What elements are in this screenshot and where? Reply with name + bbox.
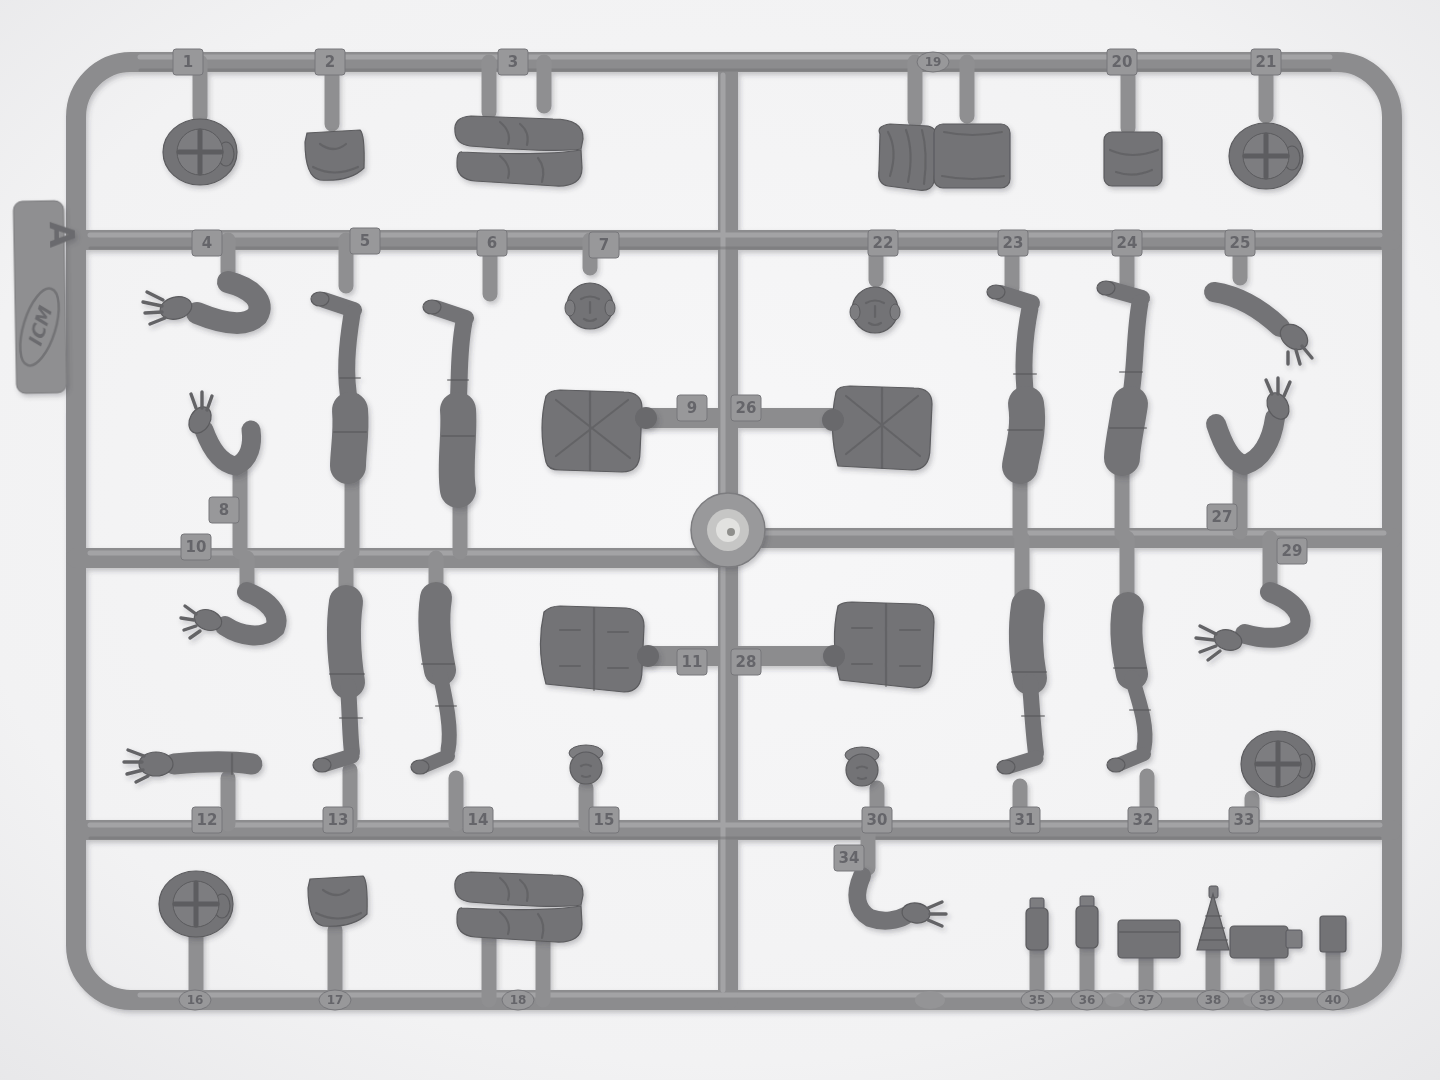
part-number-tag: 12 <box>192 807 222 833</box>
svg-text:12: 12 <box>197 811 218 829</box>
svg-text:15: 15 <box>594 811 615 829</box>
svg-text:25: 25 <box>1230 234 1251 252</box>
svg-text:18: 18 <box>510 993 527 1007</box>
svg-text:21: 21 <box>1256 53 1277 71</box>
part-11-torso <box>540 606 659 692</box>
part-number-tag: 31 <box>1010 807 1040 833</box>
part-number-tag: 38 <box>1197 990 1229 1010</box>
part-19-backpack <box>879 124 1010 190</box>
svg-text:40: 40 <box>1325 993 1342 1007</box>
svg-text:8: 8 <box>219 501 229 519</box>
part-number-tag: 39 <box>1251 990 1283 1010</box>
part-26-torso <box>822 386 932 470</box>
part-number-tag: 22 <box>868 230 898 256</box>
svg-text:24: 24 <box>1117 234 1138 252</box>
blank-gate-tab <box>1105 993 1125 1007</box>
part-33-peaked-cap <box>1241 731 1315 797</box>
svg-text:19: 19 <box>925 55 942 69</box>
part-30-head <box>845 747 879 786</box>
part-number-tag: 2 <box>315 49 345 75</box>
svg-text:14: 14 <box>468 811 489 829</box>
svg-text:28: 28 <box>736 653 757 671</box>
svg-text:1: 1 <box>183 53 193 71</box>
part-number-tag: 10 <box>181 534 211 560</box>
svg-text:5: 5 <box>360 232 370 250</box>
part-2-side-cap <box>305 130 364 180</box>
part-number-tag: 25 <box>1225 230 1255 256</box>
sprue-letter: A <box>42 221 82 249</box>
center-ejector-boss <box>691 493 765 567</box>
part-number-tag: 3 <box>498 49 528 75</box>
svg-text:17: 17 <box>327 993 344 1007</box>
part-number-tag: 35 <box>1021 990 1053 1010</box>
svg-text:39: 39 <box>1259 993 1276 1007</box>
part-number-tag: 34 <box>834 845 864 871</box>
svg-text:20: 20 <box>1112 53 1133 71</box>
sprue-frame-a: A ICM 1231920214567222324258926102711282… <box>0 0 1440 1080</box>
svg-text:34: 34 <box>839 849 860 867</box>
svg-text:26: 26 <box>736 399 757 417</box>
part-number-tag: 33 <box>1229 807 1259 833</box>
sprue-photo: A ICM 1231920214567222324258926102711282… <box>0 0 1440 1080</box>
svg-text:3: 3 <box>508 53 518 71</box>
svg-text:9: 9 <box>687 399 697 417</box>
part-number-tag: 4 <box>192 230 222 256</box>
svg-text:10: 10 <box>186 538 207 556</box>
part-9-torso <box>542 390 657 472</box>
part-number-tag: 1 <box>173 49 203 75</box>
part-number-tag: 21 <box>1251 49 1281 75</box>
part-number-tag: 9 <box>677 395 707 421</box>
part-16-peaked-cap <box>159 871 233 937</box>
svg-text:22: 22 <box>873 234 894 252</box>
part-20-pouch <box>1104 132 1162 186</box>
part-number-tag: 20 <box>1107 49 1137 75</box>
part-number-tag: 16 <box>179 990 211 1010</box>
svg-text:6: 6 <box>487 234 497 252</box>
part-number-tag: 28 <box>731 649 761 675</box>
svg-text:7: 7 <box>599 236 609 254</box>
part-number-tag: 14 <box>463 807 493 833</box>
svg-text:31: 31 <box>1015 811 1036 829</box>
part-17-side-cap <box>308 876 367 926</box>
part-number-tag: 32 <box>1128 807 1158 833</box>
blank-gate-tab <box>915 991 945 1009</box>
part-number-tag: 36 <box>1071 990 1103 1010</box>
svg-text:32: 32 <box>1133 811 1154 829</box>
svg-text:38: 38 <box>1205 993 1222 1007</box>
part-28-torso <box>823 602 934 688</box>
svg-text:27: 27 <box>1212 508 1233 526</box>
part-number-tag: 11 <box>677 649 707 675</box>
part-number-tag: 37 <box>1130 990 1162 1010</box>
svg-text:4: 4 <box>202 234 212 252</box>
part-number-tag: 27 <box>1207 504 1237 530</box>
part-number-tag: 17 <box>319 990 351 1010</box>
part-40-equipment <box>1320 916 1346 952</box>
svg-text:33: 33 <box>1234 811 1255 829</box>
part-number-tag: 23 <box>998 230 1028 256</box>
svg-text:2: 2 <box>325 53 335 71</box>
part-number-tag: 26 <box>731 395 761 421</box>
part-37-equipment-box <box>1118 920 1180 958</box>
svg-text:35: 35 <box>1029 993 1046 1007</box>
part-number-tag: 5 <box>350 228 380 254</box>
svg-text:30: 30 <box>867 811 888 829</box>
svg-text:23: 23 <box>1003 234 1024 252</box>
svg-text:29: 29 <box>1282 542 1303 560</box>
part-1-peaked-cap <box>163 119 237 185</box>
part-number-tag: 15 <box>589 807 619 833</box>
part-number-tag: 19 <box>917 52 949 72</box>
part-number-tag: 6 <box>477 230 507 256</box>
svg-text:36: 36 <box>1079 993 1096 1007</box>
part-number-tag: 18 <box>502 990 534 1010</box>
part-number-tag: 8 <box>209 497 239 523</box>
part-21-peaked-cap <box>1229 123 1303 189</box>
part-number-tag: 40 <box>1317 990 1349 1010</box>
part-number-tag: 29 <box>1277 538 1307 564</box>
part-15-head <box>569 745 603 784</box>
svg-text:11: 11 <box>682 653 703 671</box>
svg-text:37: 37 <box>1138 993 1155 1007</box>
svg-text:13: 13 <box>328 811 349 829</box>
part-number-tag: 7 <box>589 232 619 258</box>
svg-text:16: 16 <box>187 993 204 1007</box>
part-number-tag: 24 <box>1112 230 1142 256</box>
part-number-tag: 13 <box>323 807 353 833</box>
part-number-tag: 30 <box>862 807 892 833</box>
